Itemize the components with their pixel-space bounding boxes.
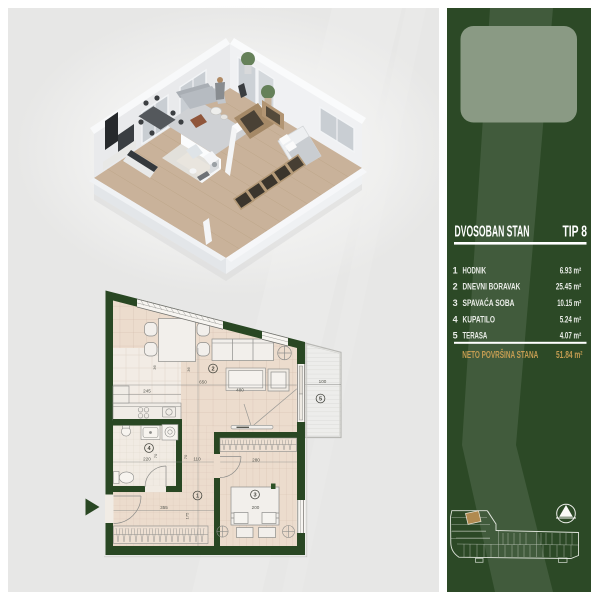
svg-text:DNEVNI BORAVAK: DNEVNI BORAVAK: [463, 282, 521, 292]
svg-text:5.24 m²: 5.24 m²: [560, 314, 582, 324]
svg-text:650: 650: [199, 379, 207, 384]
svg-text:TIP 8: TIP 8: [563, 224, 588, 241]
svg-text:70: 70: [183, 454, 188, 459]
svg-text:NETO POVRŠINA STANA: NETO POVRŠINA STANA: [462, 348, 538, 361]
svg-text:110: 110: [193, 457, 201, 462]
svg-text:3: 3: [253, 493, 256, 499]
svg-text:36: 36: [186, 367, 191, 372]
svg-text:2: 2: [453, 282, 458, 292]
svg-text:10.15 m²: 10.15 m²: [557, 298, 581, 308]
svg-text:HODNIK: HODNIK: [463, 265, 487, 275]
svg-text:175: 175: [185, 512, 190, 519]
svg-text:3: 3: [453, 298, 458, 308]
svg-text:DVOSOBAN STAN: DVOSOBAN STAN: [455, 224, 530, 241]
svg-text:1: 1: [196, 494, 199, 500]
svg-text:4: 4: [453, 314, 458, 324]
svg-text:355: 355: [160, 505, 168, 510]
svg-text:36: 36: [152, 365, 157, 370]
svg-text:245: 245: [143, 389, 151, 394]
svg-text:480: 480: [236, 388, 244, 393]
svg-text:4.07 m²: 4.07 m²: [560, 331, 582, 341]
svg-text:5: 5: [453, 331, 458, 341]
svg-text:220: 220: [143, 456, 151, 461]
svg-text:SPAVAĆA SOBA: SPAVAĆA SOBA: [463, 297, 515, 308]
svg-text:280: 280: [252, 457, 260, 462]
svg-text:70: 70: [153, 453, 158, 458]
svg-text:TERASA: TERASA: [463, 331, 488, 341]
svg-text:KUPATILO: KUPATILO: [463, 314, 496, 324]
svg-text:2: 2: [211, 367, 214, 373]
svg-text:6.93 m²: 6.93 m²: [560, 265, 582, 275]
svg-text:1: 1: [453, 265, 458, 275]
svg-text:100: 100: [319, 379, 327, 384]
svg-text:200: 200: [252, 505, 260, 510]
svg-text:51.84 m²: 51.84 m²: [556, 349, 583, 361]
svg-text:25.45 m²: 25.45 m²: [556, 282, 581, 292]
svg-text:5: 5: [319, 397, 322, 403]
